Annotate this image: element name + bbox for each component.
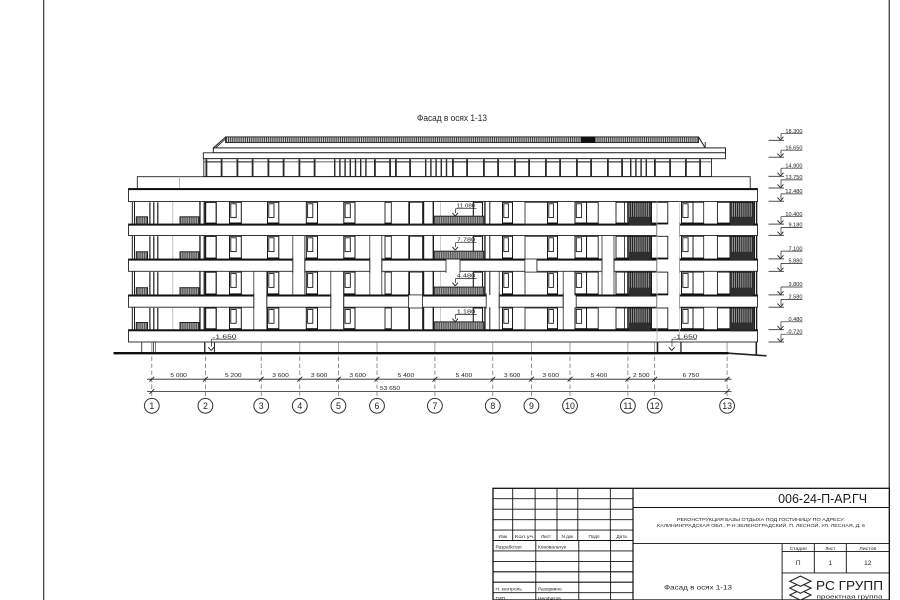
svg-text:РЕКОНСТРУКЦИЯ БАЗЫ ОТДЫХА ПОД: РЕКОНСТРУКЦИЯ БАЗЫ ОТДЫХА ПОД ГОСТИНИЦУ … [677, 517, 845, 522]
svg-text:8: 8 [490, 401, 495, 411]
svg-text:Фасад в осях 1-13: Фасад в осях 1-13 [417, 113, 487, 123]
svg-text:5 000: 5 000 [170, 373, 187, 379]
svg-text:Кол.уч: Кол.уч [515, 534, 534, 539]
svg-text:Коновальчук: Коновальчук [538, 545, 567, 551]
svg-text:Фасад в осях 1-13: Фасад в осях 1-13 [664, 585, 733, 592]
svg-text:12: 12 [864, 560, 872, 567]
svg-text:5 400: 5 400 [456, 373, 473, 379]
svg-text:6 750: 6 750 [683, 373, 700, 379]
svg-text:3 600: 3 600 [311, 373, 328, 379]
svg-text:5 200: 5 200 [225, 373, 242, 379]
svg-text:10: 10 [565, 401, 575, 411]
svg-text:2 500: 2 500 [633, 373, 650, 379]
svg-text:Лист: Лист [825, 546, 836, 551]
svg-text:1: 1 [828, 560, 832, 567]
svg-text:Н. контроль: Н. контроль [496, 587, 523, 593]
svg-text:П: П [796, 560, 801, 567]
svg-text:ГИП: ГИП [496, 596, 506, 600]
svg-text:12: 12 [650, 401, 660, 411]
svg-text:3 600: 3 600 [542, 373, 559, 379]
svg-text:3: 3 [259, 401, 264, 411]
svg-text:7: 7 [432, 401, 437, 411]
svg-text:Изм: Изм [499, 534, 508, 539]
svg-text:РС ГРУПП: РС ГРУПП [816, 578, 883, 593]
svg-text:КАЛИНИНГРАДСКАЯ ОБЛ., Р-Н ЗЕЛЕ: КАЛИНИНГРАДСКАЯ ОБЛ., Р-Н ЗЕЛЕНОГРАДСКИЙ… [657, 523, 866, 528]
svg-text:Разорвино: Разорвино [538, 587, 562, 593]
svg-text:5: 5 [336, 401, 341, 411]
svg-text:53 650: 53 650 [380, 386, 400, 392]
svg-text:Лист: Лист [541, 534, 552, 539]
svg-text:3 600: 3 600 [504, 373, 521, 379]
svg-text:Подп: Подп [589, 534, 600, 539]
svg-text:Стадия: Стадия [790, 546, 807, 551]
svg-text:Листов: Листов [859, 546, 877, 551]
svg-text:2: 2 [203, 401, 208, 411]
svg-text:Неофитов: Неофитов [538, 596, 561, 600]
svg-text:4: 4 [297, 401, 302, 411]
svg-text:6: 6 [375, 401, 380, 411]
svg-text:11: 11 [623, 401, 632, 411]
svg-text:1: 1 [149, 401, 154, 411]
svg-text:N док: N док [561, 534, 574, 539]
svg-text:006-24-П-АР.ГЧ: 006-24-П-АР.ГЧ [778, 492, 867, 506]
svg-text:5 400: 5 400 [591, 373, 608, 379]
svg-text:13: 13 [722, 401, 732, 411]
svg-text:3 600: 3 600 [272, 373, 289, 379]
svg-text:Разработал: Разработал [496, 545, 522, 551]
svg-text:3 600: 3 600 [349, 373, 366, 379]
svg-text:9: 9 [529, 401, 534, 411]
svg-text:проектная группа: проектная группа [817, 595, 884, 600]
svg-text:5 400: 5 400 [398, 373, 415, 379]
svg-text:Дата: Дата [617, 534, 628, 539]
